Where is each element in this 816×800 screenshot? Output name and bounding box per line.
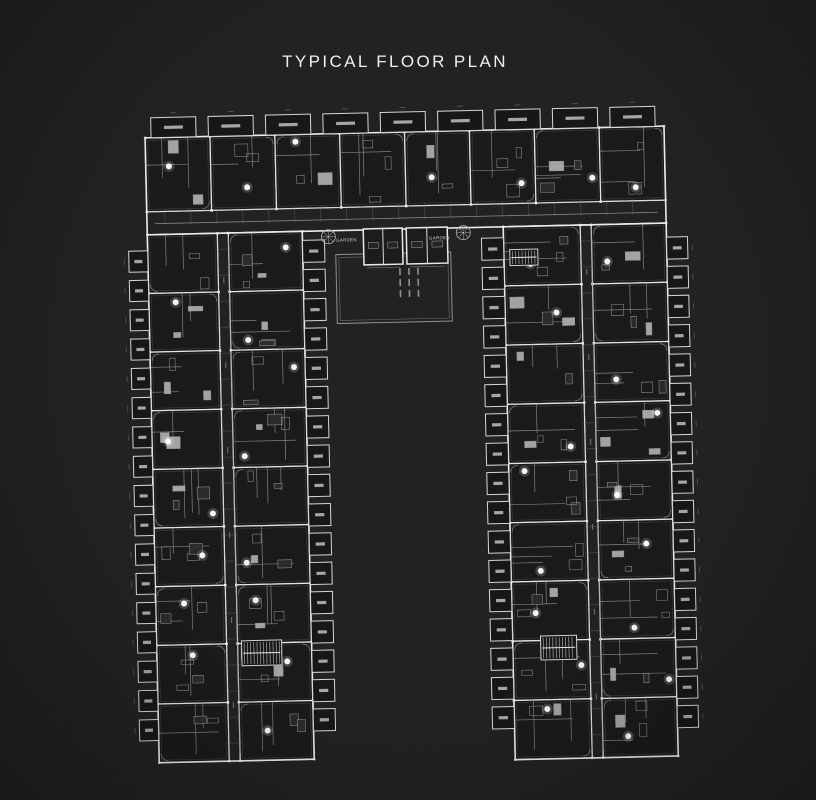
poster: TYPICAL FLOOR PLAN GARDENGARDEN xyxy=(0,0,816,800)
floor-plan-svg: GARDENGARDEN xyxy=(0,0,816,800)
page-title: TYPICAL FLOOR PLAN xyxy=(0,52,790,72)
grain-overlay xyxy=(0,0,816,800)
